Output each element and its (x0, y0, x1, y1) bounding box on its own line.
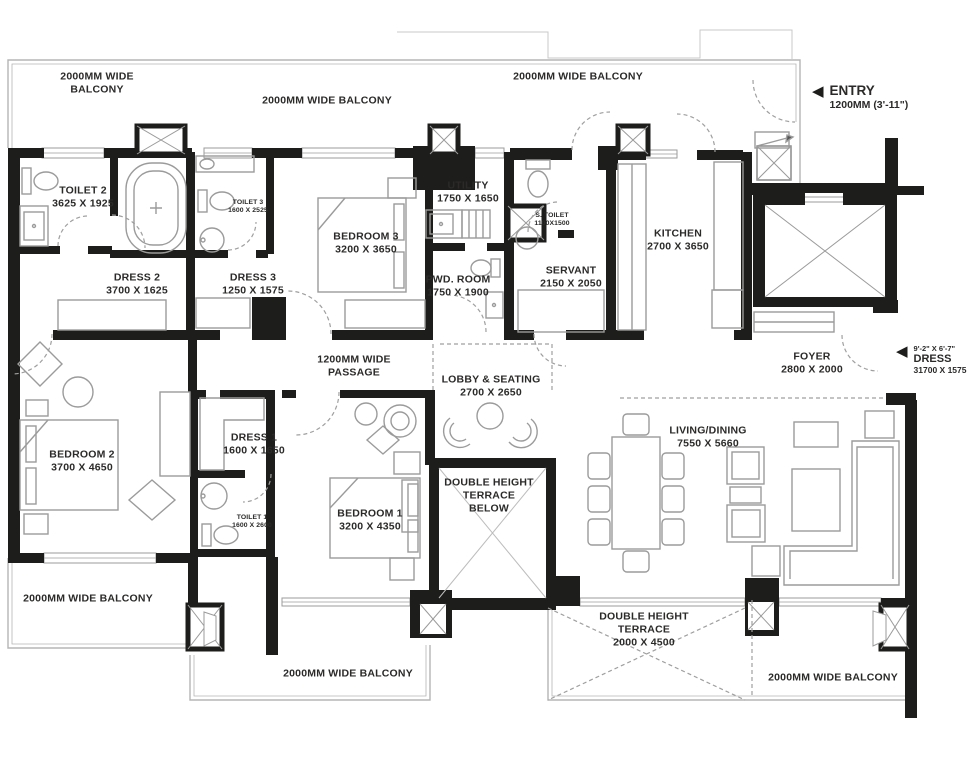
label-bedroom-3: BEDROOM 33200 X 3650 (333, 231, 398, 258)
bedroom2-furniture (18, 342, 190, 534)
label-lobby: LOBBY & SEATING2700 X 2650 (442, 374, 541, 401)
label-s-toilet: S. TOILET1100X1500 (534, 212, 569, 228)
label-balcony-top-left: 2000MM WIDEBALCONY (60, 71, 133, 98)
toilet2-basin-icon (20, 206, 48, 246)
label-dress-1: DRESS 11600 X 1650 (223, 432, 285, 459)
label-balcony-bottom-mid: 2000MM WIDE BALCONY (283, 667, 413, 680)
living-set (727, 411, 899, 585)
floor-plan: 2000MM WIDEBALCONY 2000MM WIDE BALCONY 2… (0, 0, 967, 779)
bedroom1-furniture (330, 403, 420, 580)
label-entry: ◀ ENTRY1200MM (3'-11") (812, 84, 908, 112)
label-balcony-top-mid: 2000MM WIDE BALCONY (262, 94, 392, 107)
label-living-dining: LIVING/DINING7550 X 5660 (669, 425, 746, 452)
bathtub-icon (126, 163, 186, 253)
dress3-wardrobe (196, 298, 250, 328)
dress2-wardrobe (58, 300, 166, 330)
label-dress-3: DRESS 31250 X 1575 (222, 272, 284, 299)
label-toilet-2: TOILET 23625 X 1925 (52, 185, 114, 212)
label-toilet-3: TOILET 31600 X 2525 (228, 199, 268, 215)
label-bedroom-2: BEDROOM 23700 X 4650 (49, 449, 114, 476)
label-dht-terrace: DOUBLE HEIGHTTERRACE2000 X 4500 (599, 610, 689, 649)
lobby-seating (444, 403, 538, 448)
label-bedroom-1: BEDROOM 13200 X 4350 (337, 508, 402, 535)
label-passage: 1200MM WIDEPASSAGE (317, 354, 390, 381)
label-dress-side: ◀ 9'-2" X 6'-7"DRESS31700 X 1575 (896, 344, 967, 376)
label-foyer: FOYER2800 X 2000 (781, 351, 843, 378)
foyer-console (754, 312, 834, 332)
dress-arrow-icon: ◀ (896, 344, 908, 359)
label-toilet-1: TOILET 11600 X 2600 (232, 514, 272, 530)
label-balcony-top-right: 2000MM WIDE BALCONY (513, 70, 643, 83)
utility-sink-icon (426, 210, 490, 238)
label-utility: UTILITY1750 X 1650 (437, 180, 499, 207)
label-kitchen: KITCHEN2700 X 3650 (647, 228, 709, 255)
entry-arrow-icon: ◀ (812, 84, 824, 99)
servant-bed (518, 290, 604, 332)
label-servant: SERVANT2150 X 2050 (540, 265, 602, 292)
label-pwd-room: PWD. ROOM1750 X 1900 (426, 274, 491, 301)
label-dress-2: DRESS 23700 X 1625 (106, 272, 168, 299)
label-balcony-bottom-left: 2000MM WIDE BALCONY (23, 592, 153, 605)
label-balcony-bottom-right: 2000MM WIDE BALCONY (768, 671, 898, 684)
walls (8, 138, 924, 718)
label-dht-below: DOUBLE HEIGHTTERRACEBELOW (444, 476, 534, 515)
lift-door (805, 193, 843, 205)
